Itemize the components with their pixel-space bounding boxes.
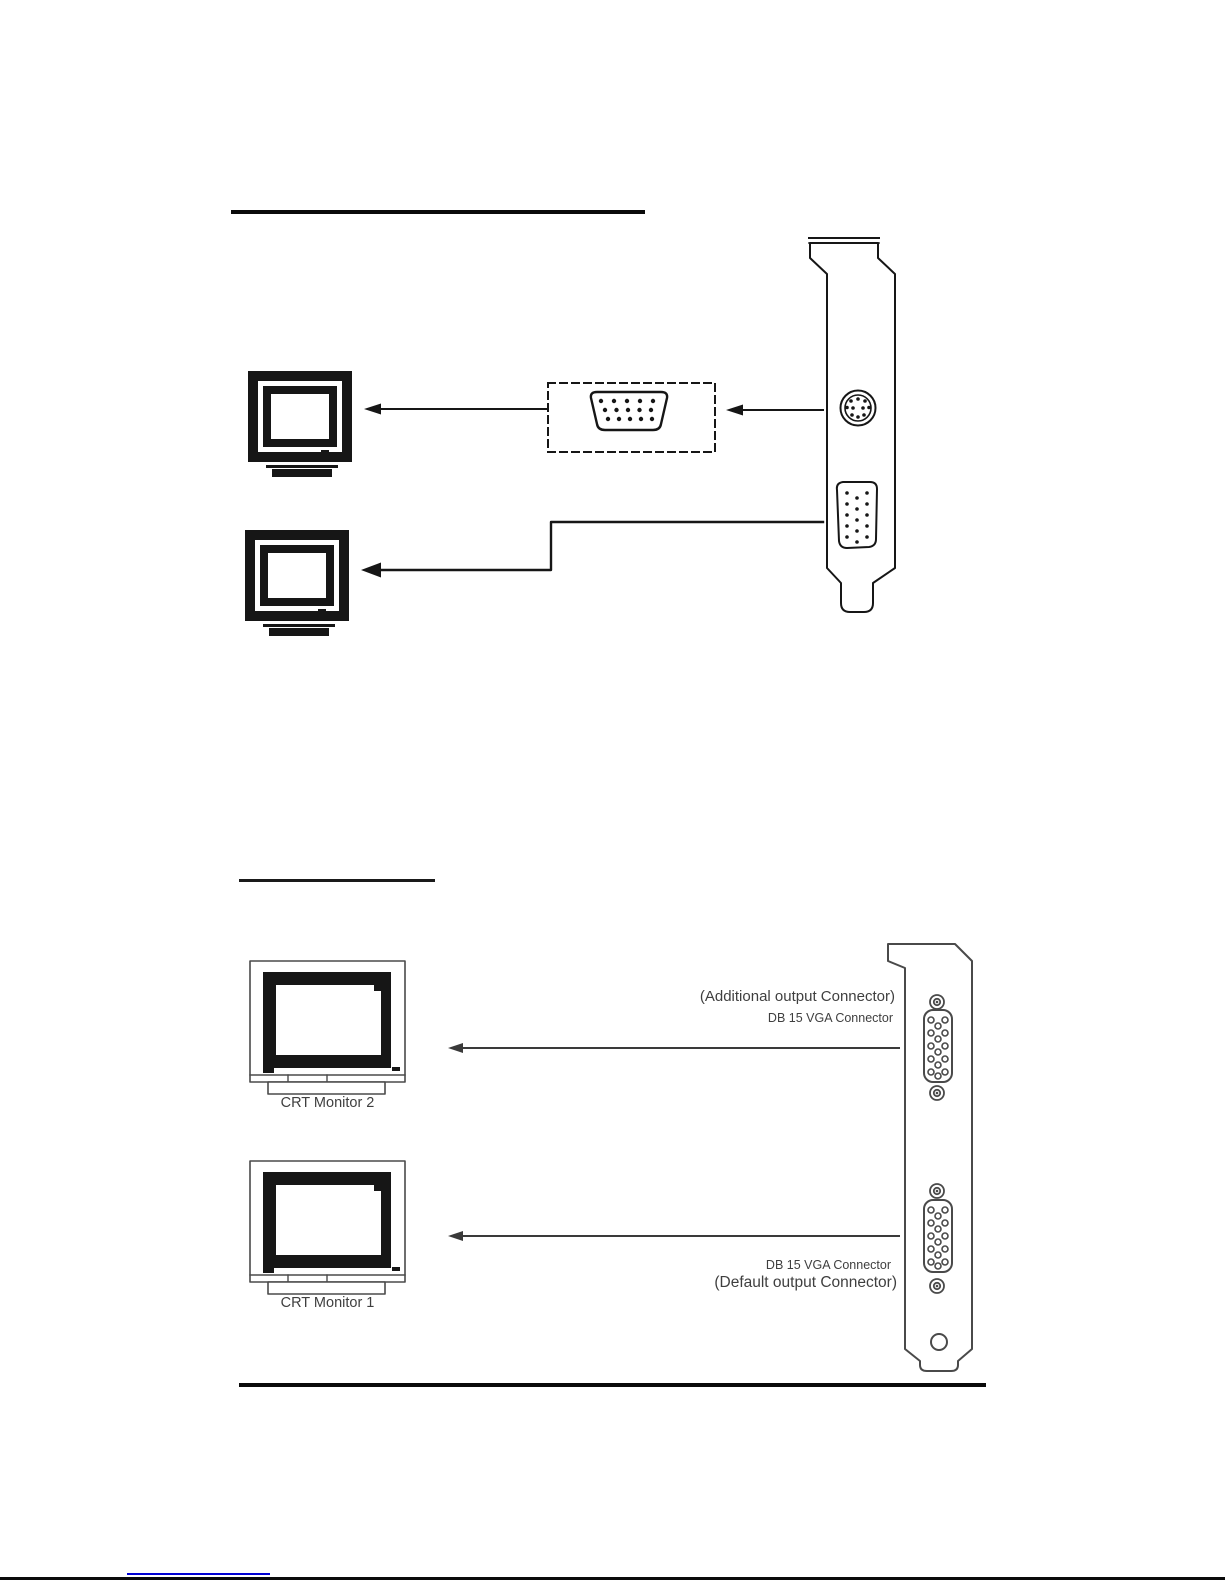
screw-post-icon — [930, 1184, 944, 1198]
vga-adapter-box — [548, 383, 715, 452]
card-bracket-icon-bottom — [888, 944, 972, 1371]
vga-port-icon-top — [837, 482, 877, 548]
screw-post-icon — [930, 1279, 944, 1293]
cable-arrow-card-to-adapter — [726, 405, 823, 416]
crt-monitor-2-icon — [250, 961, 405, 1094]
crt-monitor-1-icon — [250, 1161, 405, 1294]
label-additional-vga-connector: DB 15 VGA Connector — [495, 1011, 893, 1025]
tv-out-port-icon — [841, 391, 876, 426]
screw-post-icon — [930, 1086, 944, 1100]
diagram-canvas — [0, 0, 1225, 1585]
cable-arrow-adapter-to-monitor — [364, 404, 548, 415]
mounting-hole-icon — [931, 1334, 947, 1350]
cable-arrow-to-crt-monitor-1 — [448, 1231, 899, 1241]
screw-post-icon — [930, 995, 944, 1009]
cable-arrow-card-to-second-monitor — [361, 522, 823, 578]
vga-port-icon-default — [924, 1200, 952, 1272]
label-default-vga-connector: DB 15 VGA Connector — [495, 1258, 891, 1272]
figure-analog-monitor-connection — [245, 238, 895, 636]
card-bracket-icon-top — [809, 238, 895, 612]
label-additional-output-connector: (Additional output Connector) — [495, 988, 895, 1005]
label-crt-monitor-1: CRT Monitor 1 — [250, 1295, 405, 1312]
monitor-icon-second — [245, 530, 349, 636]
cable-arrow-to-crt-monitor-2 — [448, 1043, 899, 1053]
manual-page: (Additional output Connector) DB 15 VGA … — [0, 0, 1225, 1585]
vga-port-icon-additional — [924, 1010, 952, 1082]
monitor-icon-top — [248, 371, 352, 477]
label-crt-monitor-2: CRT Monitor 2 — [250, 1095, 405, 1112]
label-default-output-connector: (Default output Connector) — [495, 1274, 897, 1292]
